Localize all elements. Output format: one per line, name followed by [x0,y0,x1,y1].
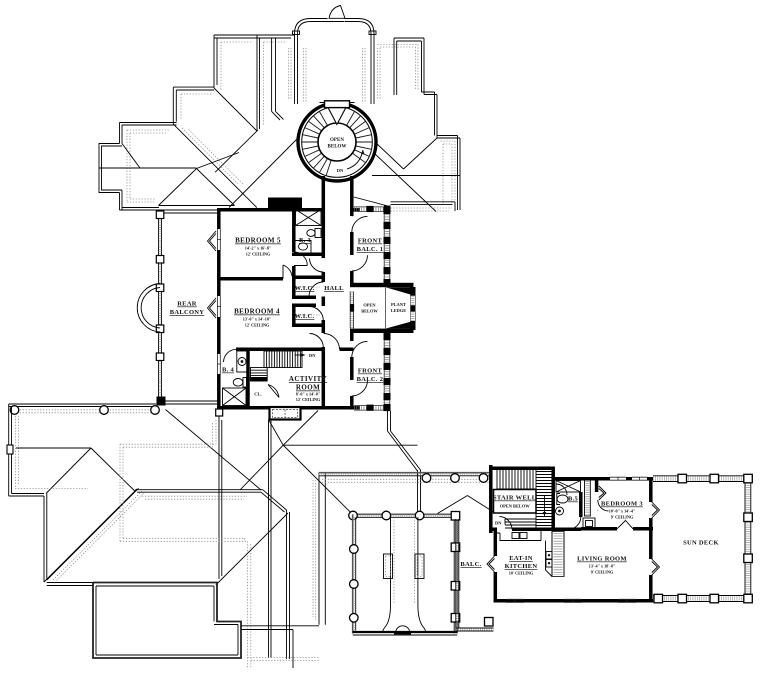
svg-text:CL.: CL. [254,392,261,397]
svg-text:B. 4: B. 4 [222,367,234,374]
svg-text:9' CEILING: 9' CEILING [611,515,634,520]
svg-text:BEDROOM 3: BEDROOM 3 [601,501,643,508]
svg-text:8'-0" x 14'-0": 8'-0" x 14'-0" [296,392,320,397]
svg-text:SUN DECK: SUN DECK [683,540,719,547]
svg-text:BEDROOM 4: BEDROOM 4 [234,308,280,316]
svg-text:LIVING ROOM: LIVING ROOM [577,556,627,563]
svg-text:12' CEILING: 12' CEILING [245,323,270,328]
svg-text:12' CEILING: 12' CEILING [246,252,271,257]
svg-text:10' CEILING: 10' CEILING [509,571,534,576]
svg-text:BALC. 2: BALC. 2 [357,376,384,383]
svg-text:HALL: HALL [324,285,344,292]
svg-text:B. 3: B. 3 [299,237,311,244]
svg-text:FRONT: FRONT [358,238,383,245]
svg-text:BALCONY: BALCONY [170,309,205,316]
svg-text:OPEN: OPEN [330,138,344,143]
svg-text:BALC.: BALC. [460,561,481,568]
svg-text:OPEN BELOW: OPEN BELOW [500,504,530,509]
svg-text:10'-0" x 14'-4": 10'-0" x 14'-4" [609,509,636,514]
svg-text:BEDROOM 5: BEDROOM 5 [235,237,281,245]
svg-text:9' CEILING: 9' CEILING [591,570,614,575]
svg-text:DN: DN [495,521,502,526]
svg-text:ACTIVITY: ACTIVITY [289,375,327,383]
svg-text:BELOW: BELOW [361,309,378,314]
svg-text:KITCHEN: KITCHEN [505,563,538,570]
svg-text:13'-0" x 14'-10": 13'-0" x 14'-10" [243,317,272,322]
svg-text:12' CEILING: 12' CEILING [296,397,321,402]
svg-text:ROOM: ROOM [296,384,320,392]
svg-text:LEDGE: LEDGE [391,308,406,313]
svg-text:B.5: B.5 [568,496,579,503]
svg-text:BELOW: BELOW [328,145,347,150]
svg-text:STAIR WELL: STAIR WELL [493,495,537,502]
svg-text:REAR: REAR [177,301,197,308]
svg-text:BALC. 1: BALC. 1 [357,246,384,253]
svg-text:PLANT: PLANT [391,302,406,307]
svg-text:W.I.C.: W.I.C. [295,313,315,320]
svg-text:DN: DN [337,168,344,173]
svg-text:13'-4" x 18'-8": 13'-4" x 18'-8" [589,564,616,569]
svg-text:FRONT: FRONT [358,368,383,375]
svg-text:OPEN: OPEN [363,303,376,308]
svg-text:DN: DN [309,353,316,358]
svg-text:EAT-IN: EAT-IN [509,555,532,562]
svg-text:14'-2" x 16'-8": 14'-2" x 16'-8" [245,246,272,251]
